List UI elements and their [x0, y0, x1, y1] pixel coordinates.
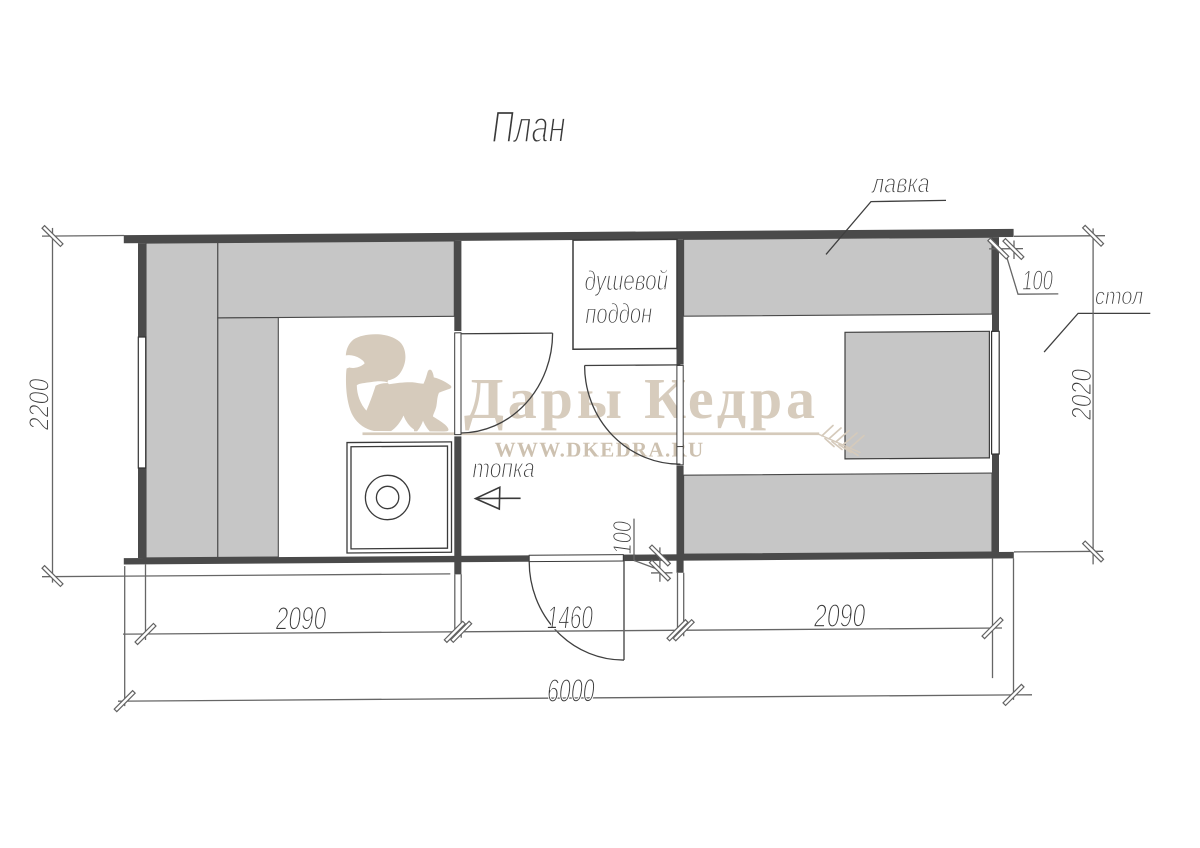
svg-text:100: 100 [607, 521, 637, 555]
svg-text:лавка: лавка [870, 168, 929, 198]
svg-text:2200: 2200 [23, 378, 54, 431]
svg-text:1460: 1460 [547, 599, 593, 635]
svg-text:2020: 2020 [1066, 369, 1097, 421]
svg-text:6000: 6000 [547, 672, 595, 708]
svg-text:стол: стол [1095, 283, 1144, 310]
svg-text:2090: 2090 [813, 597, 865, 633]
svg-text:поддон: поддон [585, 298, 652, 329]
svg-text:2090: 2090 [275, 600, 326, 636]
svg-text:План: План [492, 101, 566, 153]
svg-text:топка: топка [472, 453, 534, 483]
svg-text:100: 100 [1022, 265, 1053, 296]
svg-text:Дары Кедра: Дары Кедра [464, 366, 815, 431]
svg-text:душевой: душевой [585, 265, 669, 297]
